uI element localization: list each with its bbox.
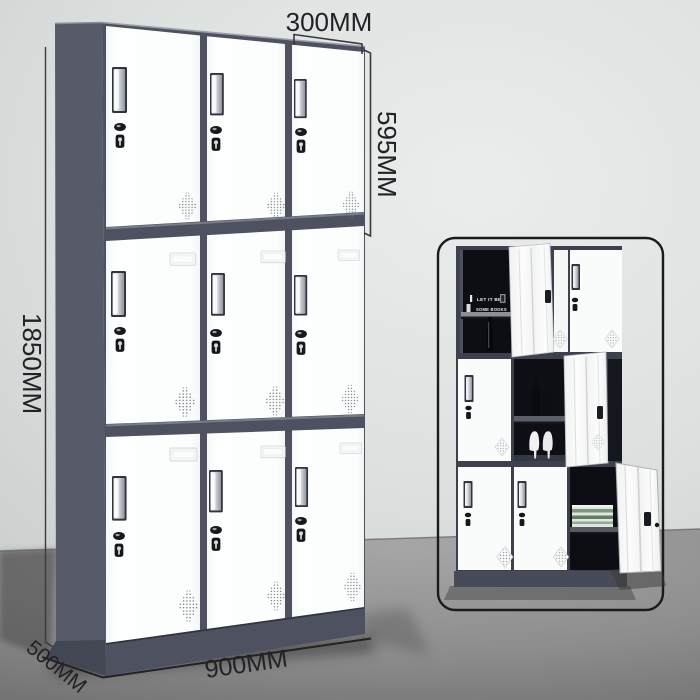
svg-text:LET IT BE: LET IT BE (477, 297, 501, 302)
svg-text:1850MM: 1850MM (17, 313, 47, 414)
svg-text:SOME BOOKS: SOME BOOKS (476, 307, 507, 312)
svg-text:300MM: 300MM (286, 7, 373, 37)
svg-text:595MM: 595MM (372, 111, 402, 198)
